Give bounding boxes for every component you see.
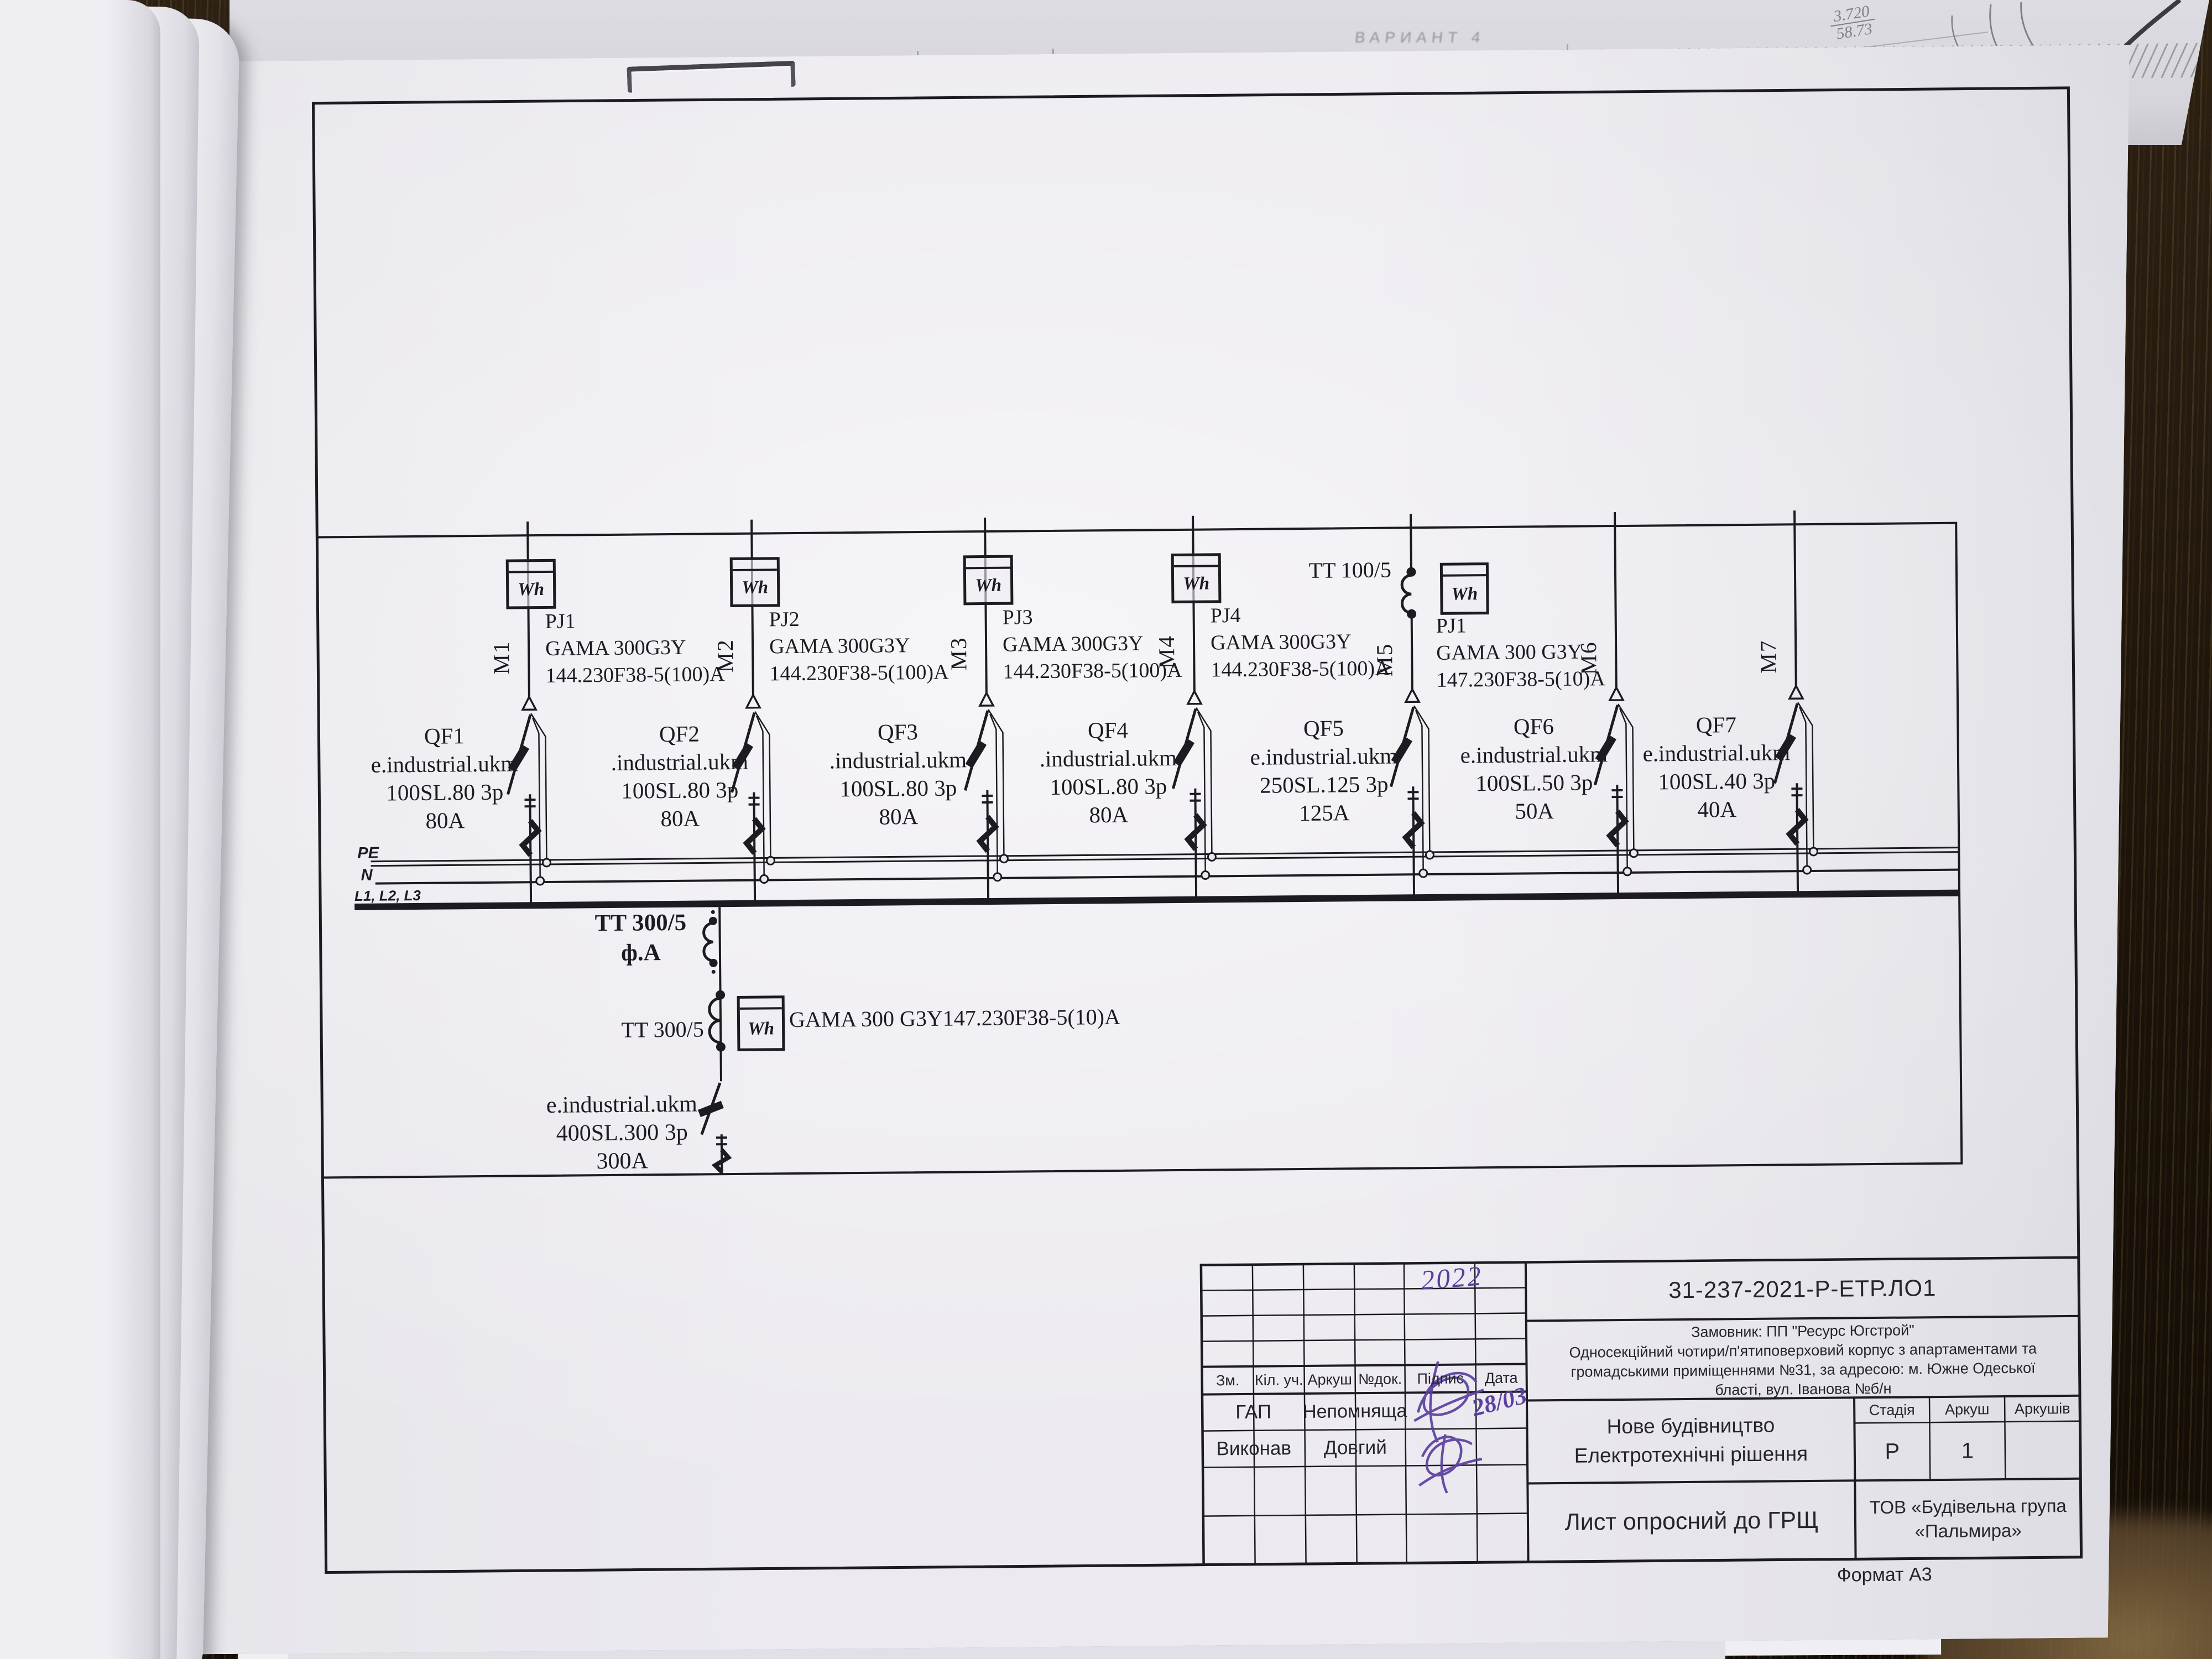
ct-100-5-label: TT 100/5: [1253, 557, 1391, 584]
doc-title: Лист опросний до ГРЩ: [1527, 1480, 1855, 1562]
wh-meter-icon: Wh: [509, 573, 554, 607]
ct-label-line1: TT 300/5: [595, 908, 687, 938]
wh-meter-icon: Wh: [733, 571, 778, 604]
m3-label: M3: [945, 637, 972, 670]
qf-make: e.industrial.ukm: [315, 749, 575, 780]
qf-type: 100SL.40 3p: [1587, 766, 1846, 796]
meter-terminal-strip: [740, 998, 782, 1010]
main-meter-spec: GAMA 300 G3Y147.230F38-5(10)A: [789, 1002, 1331, 1033]
qf-type: 100SL.80 3p: [315, 778, 575, 808]
qf7-label: QF7 e.industrial.ukm 100SL.40 3p 40A: [1586, 709, 1847, 825]
col-header-kil-uch: Кіл. уч.: [1253, 1366, 1304, 1394]
handwritten-year: 2022: [1420, 1259, 1484, 1296]
stage-value: Р: [1854, 1422, 1930, 1480]
main-drawing-sheet: Wh Wh Wh Wh Wh Wh M1 PJ1 GAMA 300G3Y 144…: [0, 0, 2212, 1659]
row-vykonav-role: Виконав: [1203, 1430, 1306, 1468]
breaker-make: e.industrial.ukm: [494, 1090, 749, 1120]
m7-label: M7: [1755, 639, 1782, 673]
ct-300-5-phase-a-symbol: [703, 910, 717, 973]
sheet-value: 1: [1929, 1422, 2005, 1480]
pj3-meter-box: Wh: [963, 555, 1014, 606]
company-line2: «Пальмира»: [1914, 1519, 2021, 1544]
meter-terminal-strip: [509, 562, 553, 573]
pj1-meter-box: Wh: [506, 559, 556, 609]
meter-terminal-strip: [966, 558, 1010, 570]
work-description: Нове будівництво Електротехнічні рішення: [1527, 1397, 1855, 1483]
ct-300-5-metering-label: TT 300/5: [610, 1016, 715, 1043]
breaker-type: 400SL.300 3p: [495, 1118, 749, 1149]
meter-terminal-strip: [1443, 565, 1486, 577]
format-note: Формат А3: [1837, 1564, 1932, 1586]
qf-make: e.industrial.ukm: [1587, 738, 1846, 768]
ct-300-5-phase-a-label: TT 300/5 ф.А: [582, 908, 699, 969]
col-header-no-dok: №док.: [1355, 1365, 1405, 1393]
row-gap-role: ГАП: [1202, 1394, 1305, 1431]
pj4-meter-box: Wh: [1171, 553, 1222, 603]
m6-label: M6: [1575, 641, 1602, 675]
project-description: Замовник: ПП "Ресурс Югстрой" Односекцій…: [1532, 1319, 2074, 1402]
breaker-amps: 300A: [495, 1146, 749, 1177]
m2-label: M2: [712, 639, 739, 672]
work-line1: Нове будівництво: [1606, 1411, 1775, 1442]
page-stack-left-3: [0, 0, 160, 1659]
wh-meter-icon: Wh: [966, 569, 1011, 603]
photo-of-electrical-drawing: ВАРИАНТ 4 3.720 58.73: [0, 0, 2212, 1659]
meter-terminal-strip: [733, 560, 777, 571]
qf1-label: QF1 e.industrial.ukm 100SL.80 3p 80A: [314, 721, 575, 836]
main-meter-box: Wh: [737, 995, 785, 1051]
qf-amps: 80A: [315, 806, 575, 836]
m1-label: M1: [488, 640, 515, 674]
col-header-arkush: Аркуш: [1304, 1365, 1355, 1394]
company-line1: ТОВ «Будівельна група: [1869, 1494, 2067, 1520]
company-name: ТОВ «Будівельна група «Пальмира»: [1855, 1479, 2081, 1559]
col-header-zm: Зм.: [1202, 1366, 1253, 1395]
m4-label: M4: [1153, 635, 1180, 669]
m5-label: M5: [1371, 643, 1398, 677]
wh-meter-icon: Wh: [740, 1009, 782, 1048]
meter-terminal-strip: [1174, 556, 1218, 567]
pj2-meter-box: Wh: [730, 557, 780, 607]
doc-number: 31-237-2021-Р-ЕТР.ЛО1: [1526, 1258, 2079, 1321]
work-line2: Електротехнічні рішення: [1574, 1439, 1808, 1470]
pe-bus-label: PE: [357, 844, 379, 863]
qf-amps: 40A: [1587, 794, 1847, 825]
col-header-pidpys: Підпис: [1405, 1364, 1475, 1392]
qf-name: QF1: [314, 721, 574, 752]
ct-label-line2: ф.А: [621, 938, 661, 968]
sheets-header: Аркушів: [2005, 1396, 2080, 1422]
qf-name: QF7: [1586, 709, 1846, 740]
sheet-header: Аркуш: [1929, 1396, 2005, 1422]
row-gap-name: Непомняща: [1305, 1392, 1406, 1430]
pj-name: PJ1: [1436, 610, 1751, 640]
phase-bus-label: L1, L2, L3: [354, 887, 421, 905]
n-bus-label: N: [361, 867, 373, 885]
wh-meter-icon: Wh: [1174, 567, 1219, 601]
main-breaker-label: e.industrial.ukm 400SL.300 3p 300A: [494, 1090, 749, 1177]
phase-bus-line: [354, 893, 1959, 907]
stage-header: Стадія: [1854, 1397, 1929, 1423]
row-vykonav-name: Довгий: [1305, 1429, 1406, 1467]
n-bus-line: [375, 870, 1958, 884]
